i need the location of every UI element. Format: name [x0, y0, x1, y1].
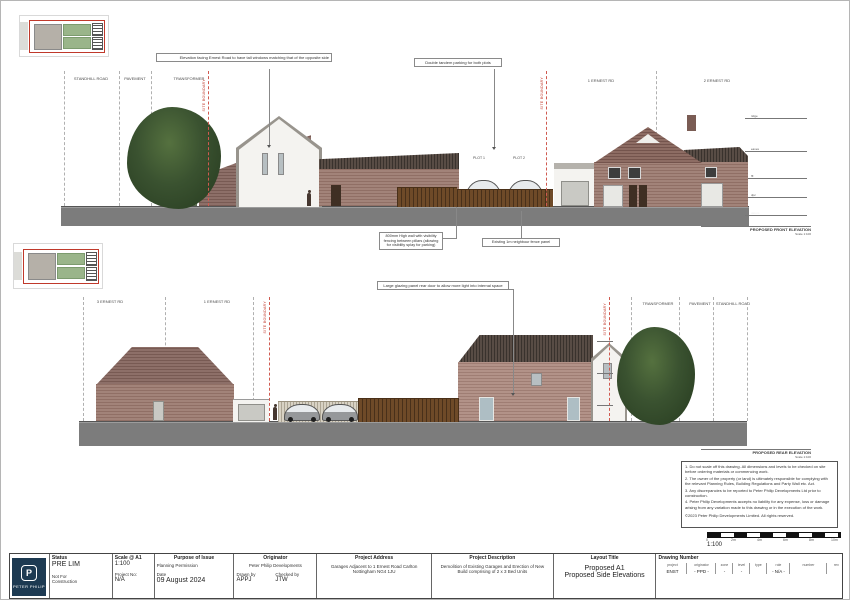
description-header: Project Description	[434, 555, 551, 561]
label-site-boundary-front-right: SITE BOUNDARY	[540, 77, 544, 109]
dn-col-value: -	[716, 569, 732, 574]
tree-front	[127, 107, 221, 209]
label-1-ernest-rd-rear: 1 ERNEST RD	[189, 300, 245, 304]
peter-philip-logo-icon: P	[21, 565, 37, 581]
level-line	[745, 118, 807, 119]
date-value: 09 August 2024	[157, 577, 232, 584]
level-label: dpc	[751, 193, 756, 197]
rear-house-roof	[458, 335, 593, 363]
semi-window	[705, 167, 717, 178]
label-plot-2: PLOT 2	[504, 157, 534, 161]
dn-col-value: -	[733, 569, 749, 574]
originator-value: Peter Philip Developments	[236, 563, 314, 568]
key-plan-building	[28, 253, 56, 280]
rear-glazed-door	[479, 397, 494, 421]
site-boundary-line	[208, 71, 209, 206]
note-line: 1. Do not scale off this drawing. All di…	[685, 464, 834, 475]
chimney	[687, 115, 696, 131]
person-figure	[307, 193, 311, 206]
car-rear-1	[284, 404, 320, 421]
key-plan-garden-1	[63, 24, 91, 36]
level-tick	[597, 341, 613, 342]
dn-col-value: ENST	[658, 569, 686, 574]
garage-door-opening	[331, 185, 341, 206]
label-2-ernest-rd-front: 2 ERNEST RD	[689, 79, 745, 83]
leader-line	[456, 207, 457, 239]
dn-col-header: zone	[716, 563, 732, 567]
originator-header: Originator	[236, 555, 314, 561]
layout-title-header: Layout Title	[556, 555, 654, 561]
scale-value: 1:100	[115, 561, 152, 567]
leader-line	[521, 211, 522, 238]
tall-window-1	[262, 153, 268, 175]
level-line	[745, 197, 807, 198]
semi-window	[628, 167, 641, 179]
semi-front-door	[639, 185, 647, 207]
layout-title-line2: Proposed Side Elevations	[556, 572, 654, 579]
scale-tick: 8m	[809, 538, 814, 542]
drawing-sheet: Elevation facing Ernest Road to have tal…	[0, 0, 850, 600]
label-site-boundary-rear-left: SITE BOUNDARY	[263, 301, 267, 333]
scale-tick: 2m	[731, 538, 736, 542]
dn-col-header: originator	[687, 563, 715, 567]
label-plot-1: PLOT 1	[464, 157, 494, 161]
front-elevation-scale: Scale 1:100	[691, 232, 811, 236]
site-boundary-line	[546, 71, 547, 206]
callout-800mm-wall: 800mm High wall with visibility fencing …	[379, 232, 443, 250]
dn-col-header: type	[750, 563, 766, 567]
neighbour-garage-door	[561, 181, 589, 206]
label-road-front: STANDHILL ROAD	[63, 77, 119, 81]
scale-tick: 10m	[831, 538, 838, 542]
layout-title-line1: Proposed A1	[556, 565, 654, 572]
label-road-rear: STANDHILL ROAD	[715, 302, 751, 306]
purpose-header: Purpose of Issue	[157, 555, 232, 561]
key-plan-road	[20, 22, 28, 50]
tree-rear	[617, 327, 695, 425]
label-1-ernest-rd-front: 1 ERNEST RD	[573, 79, 629, 83]
level-tick	[597, 373, 613, 374]
key-plan-parking-1	[92, 23, 103, 36]
grid-line	[64, 71, 65, 206]
dn-col-header: rev	[827, 563, 842, 567]
label-site-boundary-front-left: SITE BOUNDARY	[202, 79, 206, 111]
dn-col-value: - N/A -	[767, 569, 789, 574]
grid-line	[713, 297, 714, 421]
scale-cell: Scale @ A1 1:100 Project No: N/A	[112, 554, 154, 598]
callout-existing-fence: Existing 1m neighbour fence panel	[482, 238, 560, 247]
semi-bay-window	[701, 183, 723, 207]
grid-line	[747, 297, 748, 421]
key-plan-garden-2	[63, 37, 91, 49]
rear-left-house-door	[153, 401, 164, 421]
key-plan-thumbnail-top	[19, 15, 109, 57]
status-sub: Construction	[52, 579, 110, 584]
semi-bay-window	[603, 185, 623, 207]
peter-philip-logo: P PETER PHILIP	[12, 558, 46, 596]
note-line: 3. Any discrepancies to be reported to P…	[685, 488, 834, 499]
scale-tick: 4m	[757, 538, 762, 542]
car-rear-2	[322, 404, 358, 421]
key-plan-parking-1	[86, 252, 97, 266]
scale-bar	[707, 532, 841, 538]
note-line: 4. Peter Philip Developments accepts no …	[685, 499, 834, 510]
visibility-fence-panels	[397, 187, 457, 207]
level-label: ridge	[751, 114, 758, 118]
status-cell: Status PRE LIM Not For Construction	[49, 554, 112, 598]
dn-col-value: - PPD -	[687, 569, 715, 574]
rear-glazed-door-2	[567, 397, 580, 421]
project-no-value: N/A	[115, 577, 152, 583]
level-label: eaves	[751, 147, 759, 151]
rear-garage-door	[238, 404, 265, 421]
site-boundary-line	[269, 297, 270, 421]
callout-tall-windows: Elevation facing Ernest Road to have tal…	[156, 53, 332, 62]
ground-rear	[79, 421, 747, 446]
drawing-number-cell: Drawing Number projectENST originator- P…	[655, 554, 842, 598]
key-plan-road	[14, 252, 22, 280]
level-label: ffl	[751, 174, 753, 178]
originator-cell: Originator Peter Philip Developments Dra…	[233, 554, 316, 598]
label-pavement-rear: PAVEMENT	[683, 302, 717, 306]
leader-line	[513, 289, 514, 393]
copyright-line: ©2023 Peter Philip Developments Limited.…	[685, 513, 834, 518]
address-value: Garages Adjacent to 1 Ernest Road Carlto…	[319, 564, 429, 574]
checked-by-value: JTW	[275, 577, 314, 583]
layout-title-cell: Layout Title Proposed A1 Proposed Side E…	[553, 554, 656, 598]
site-boundary-line	[609, 297, 610, 421]
address-header: Project Address	[319, 555, 429, 561]
scale-tick: 6m	[783, 538, 788, 542]
dn-col-header: project	[658, 563, 686, 567]
semi-gable	[594, 127, 702, 163]
label-pavement-front: PAVEMENT	[117, 77, 153, 81]
label-transformer-rear: TRANSFORMER	[635, 302, 681, 306]
grid-line	[83, 297, 84, 421]
note-line: 2. The owner of the property (or land) i…	[685, 476, 834, 487]
key-plan-parking-2	[86, 267, 97, 281]
semi-window	[608, 167, 621, 179]
purpose-cell: Purpose of Issue Planning Permission Dat…	[154, 554, 234, 598]
logo-cell: P PETER PHILIP	[10, 554, 49, 598]
purpose-value: Planning Permission	[157, 563, 232, 568]
person-figure	[273, 407, 277, 420]
rear-timber-fence	[358, 398, 459, 422]
level-line	[745, 178, 807, 179]
title-block: P PETER PHILIP Status PRE LIM Not For Co…	[9, 553, 843, 599]
leader-arrow	[492, 147, 496, 150]
key-plan-thumbnail-bottom	[13, 243, 103, 289]
level-label: datum	[751, 211, 759, 215]
rear-window	[531, 373, 542, 386]
key-plan-garden-2	[57, 267, 85, 279]
ground-front	[61, 206, 749, 226]
grid-line	[119, 71, 120, 206]
drawing-number-header: Drawing Number	[658, 555, 840, 561]
level-line	[745, 215, 807, 216]
front-boundary-wall-fence	[457, 189, 553, 207]
leader-arrow	[267, 145, 271, 148]
callout-glazing-panel: Large glazing panel rear door to allow m…	[377, 281, 509, 290]
description-cell: Project Description Demolition of Existi…	[431, 554, 553, 598]
key-plan-building	[34, 24, 62, 50]
drawn-by-value: APPJ	[236, 577, 275, 583]
drawing-number-grid: projectENST originator- PPD - zone- leve…	[658, 563, 840, 574]
label-site-boundary-rear-right: SITE BOUNDARY	[603, 303, 607, 335]
callout-tandem-parking: Double tandem parking for both plots	[414, 58, 502, 67]
tall-window-2	[278, 153, 284, 175]
rear-left-house-wall	[96, 384, 234, 421]
level-line	[745, 151, 807, 152]
label-3-ernest-rd-rear: 3 ERNEST RD	[82, 300, 138, 304]
dn-col-header: role	[767, 563, 789, 567]
leader-line	[494, 69, 495, 147]
dn-col-header: level	[733, 563, 749, 567]
description-value: Demolition of Existing Garages and Erect…	[434, 564, 551, 574]
key-plan-garden-1	[57, 253, 85, 265]
semi-front-door	[629, 185, 637, 207]
scale-ratio: 1:100	[707, 542, 722, 548]
rear-gable-window	[603, 363, 612, 379]
dn-col-header: number	[790, 563, 826, 567]
brand-name: PETER PHILIP	[13, 584, 45, 589]
status-value: PRE LIM	[52, 561, 110, 568]
address-cell: Project Address Garages Adjacent to 1 Er…	[316, 554, 431, 598]
key-plan-parking-2	[92, 37, 103, 50]
leader-arrow	[511, 393, 515, 396]
level-tick	[597, 405, 613, 406]
rear-elevation-scale: Scale 1:100	[691, 455, 811, 459]
general-notes: 1. Do not scale off this drawing. All di…	[681, 461, 838, 528]
leader-line	[269, 69, 270, 145]
rear-left-house-roof	[96, 347, 234, 385]
